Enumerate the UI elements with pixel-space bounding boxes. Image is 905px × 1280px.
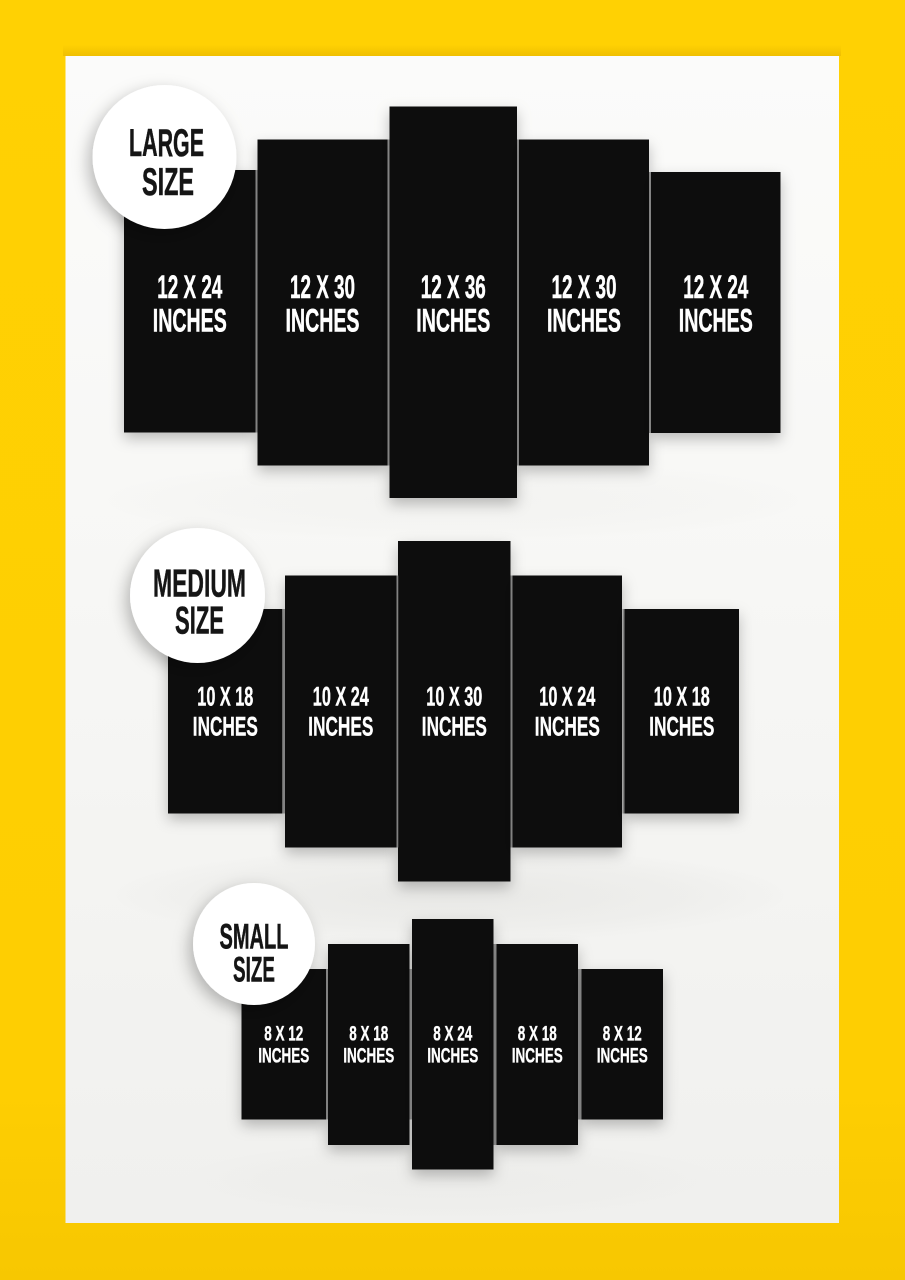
svg-text:LARGE: LARGE xyxy=(129,122,204,165)
svg-text:12 X 30: 12 X 30 xyxy=(290,269,355,305)
svg-text:INCHES: INCHES xyxy=(286,303,360,339)
svg-text:12 X 24: 12 X 24 xyxy=(157,269,222,305)
svg-text:12 X 36: 12 X 36 xyxy=(421,269,486,305)
svg-text:INCHES: INCHES xyxy=(535,712,600,742)
svg-text:INCHES: INCHES xyxy=(343,1044,394,1068)
svg-text:12 X 24: 12 X 24 xyxy=(683,269,748,305)
svg-text:12 X 30: 12 X 30 xyxy=(552,269,617,305)
svg-text:8 X 12: 8 X 12 xyxy=(264,1022,303,1046)
svg-text:INCHES: INCHES xyxy=(679,303,753,339)
svg-text:INCHES: INCHES xyxy=(512,1044,563,1068)
svg-text:8 X 12: 8 X 12 xyxy=(603,1022,642,1046)
svg-text:SIZE: SIZE xyxy=(142,161,194,204)
svg-text:8 X 18: 8 X 18 xyxy=(518,1022,557,1046)
svg-text:INCHES: INCHES xyxy=(153,303,227,339)
svg-text:10 X 24: 10 X 24 xyxy=(313,682,369,712)
svg-text:10 X 18: 10 X 18 xyxy=(197,682,253,712)
svg-text:INCHES: INCHES xyxy=(422,712,487,742)
svg-text:INCHES: INCHES xyxy=(308,712,373,742)
svg-text:INCHES: INCHES xyxy=(416,303,490,339)
svg-text:INCHES: INCHES xyxy=(649,712,714,742)
svg-text:SIZE: SIZE xyxy=(233,951,275,990)
svg-text:INCHES: INCHES xyxy=(427,1044,478,1068)
svg-text:INCHES: INCHES xyxy=(193,712,258,742)
svg-text:INCHES: INCHES xyxy=(547,303,621,339)
svg-text:10 X 18: 10 X 18 xyxy=(654,682,710,712)
svg-text:SIZE: SIZE xyxy=(175,600,224,643)
svg-text:8 X 24: 8 X 24 xyxy=(433,1022,472,1046)
svg-text:8 X 18: 8 X 18 xyxy=(349,1022,388,1046)
svg-text:10 X 30: 10 X 30 xyxy=(426,682,482,712)
svg-text:INCHES: INCHES xyxy=(258,1044,309,1068)
svg-text:10 X 24: 10 X 24 xyxy=(539,682,595,712)
svg-text:INCHES: INCHES xyxy=(597,1044,648,1068)
